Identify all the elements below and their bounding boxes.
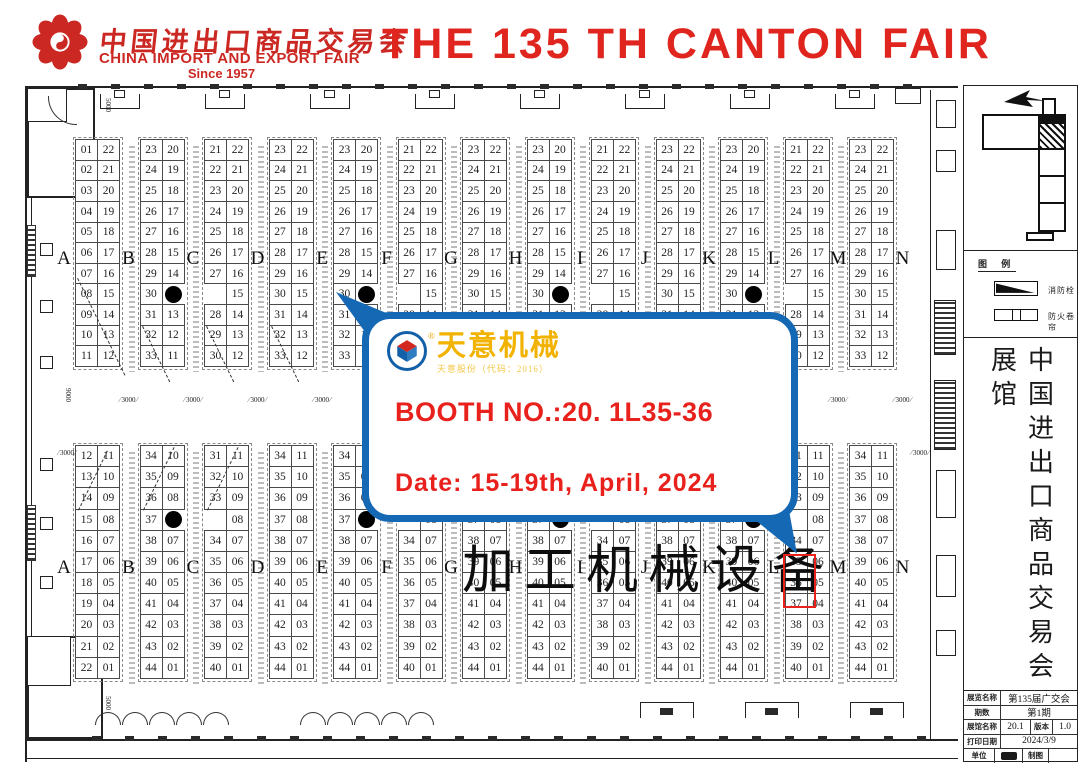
row-letter-A: A (54, 557, 74, 579)
booth-cell: 42 (462, 614, 485, 636)
booth-cell: 07 (226, 530, 249, 552)
booth-cell: 09 (291, 487, 314, 509)
booth-cell: 34 (333, 445, 356, 467)
wall-tick (752, 736, 761, 741)
booth-cell: 12 (162, 325, 185, 347)
booth-cell: 20 (420, 180, 443, 202)
wall-tick (342, 84, 351, 89)
booth-cell: 17 (420, 242, 443, 264)
booth-cell: 08 (226, 509, 249, 531)
booth-cell: 38 (849, 530, 872, 552)
booth-cell: 26 (333, 201, 356, 223)
booth-cell: 37 (204, 593, 227, 615)
booth-cell: 08 (97, 509, 120, 531)
booth-column-bottom-13: 3411351036093708380739064005410442034302… (850, 446, 894, 679)
booth-cell: 07 (291, 530, 314, 552)
booth-cell: 03 (871, 614, 894, 636)
fire-shutter-symbol (994, 309, 1038, 321)
highlighted-booth-L35-36 (783, 554, 816, 608)
wall-tick (804, 84, 813, 89)
booth-cell: 20 (97, 180, 120, 202)
wall-tick (851, 736, 860, 741)
booth-cell: 05 (162, 572, 185, 594)
entrance-structure (534, 90, 545, 98)
booth-cell: 30 (462, 283, 485, 305)
booth-cell: 04 (75, 201, 98, 223)
draw-value (1048, 749, 1077, 763)
booth-cell: 16 (871, 263, 894, 285)
booth-cell: 27 (785, 263, 808, 285)
booth-cell: 16 (678, 263, 701, 285)
booth-cell: 36 (333, 487, 356, 509)
stairwell-bottom-left-room (27, 636, 71, 686)
booth-cell: 17 (678, 242, 701, 264)
booth-cell: 21 (871, 160, 894, 182)
bottom-outer-wall (25, 758, 958, 759)
booth-cell: 22 (678, 139, 701, 161)
minimap-hall-cell (1040, 202, 1064, 229)
booth-cell: 21 (398, 139, 421, 161)
wall-tick (408, 84, 417, 89)
booth-cell: 02 (678, 636, 701, 658)
phase-label: 期数 (964, 706, 1000, 720)
booth-cell: 28 (720, 242, 743, 264)
booth-cell: 17 (549, 201, 572, 223)
booth-cell: 14 (807, 304, 830, 326)
booth-cell: 06 (162, 551, 185, 573)
booth-cell: 13 (291, 325, 314, 347)
booth-cell: 03 (742, 614, 765, 636)
booth-cell: 09 (871, 487, 894, 509)
booth-cell: 01 (226, 657, 249, 679)
wall-tick (521, 736, 530, 741)
booth-cell: 17 (613, 242, 636, 264)
door-swing-arc (176, 712, 202, 725)
floorplan: 0122022103200419051806170716081509141013… (0, 0, 1080, 764)
booth-cell: 20 (355, 139, 378, 161)
row-letter-C: C (183, 248, 203, 270)
wall-tick (785, 736, 794, 741)
booth-cell: 29 (140, 263, 163, 285)
booth-column-top-2: 2320241925182617271628152914303113321233… (141, 140, 185, 367)
booth-cell: 43 (527, 636, 550, 658)
booth-cell: 01 (162, 657, 185, 679)
booth-cell: 09 (97, 487, 120, 509)
wall-tick (672, 84, 681, 89)
booth-cell: 29 (849, 263, 872, 285)
dimension-3000: 3000 (888, 396, 918, 404)
wall-tick (276, 84, 285, 89)
booth-cell: 04 (420, 593, 443, 615)
booth-cell: 25 (462, 180, 485, 202)
booth-cell: 19 (75, 593, 98, 615)
booth-cell: 37 (398, 593, 421, 615)
booth-cell: 16 (355, 222, 378, 244)
service-room (934, 300, 956, 355)
booth-cell: 19 (549, 160, 572, 182)
booth-column-top-3: 2122222123202419251826172716152814291330… (205, 140, 249, 367)
booth-cell: 44 (656, 657, 679, 679)
row-letter-J: J (635, 248, 655, 270)
booth-cell: 08 (871, 509, 894, 531)
booth-cell: 15 (75, 509, 98, 531)
booth-cell: 38 (269, 530, 292, 552)
wall-tick (686, 736, 695, 741)
booth-cell: 16 (807, 263, 830, 285)
booth-cell: 37 (140, 509, 163, 531)
booth-column-bottom-1: 1211131014091508160717061805190420032102… (76, 446, 120, 679)
loading-bay-structure (870, 708, 883, 715)
dimension-3000: 3000 (823, 396, 853, 404)
wall-tick (653, 736, 662, 741)
booth-cell: 11 (291, 445, 314, 467)
booth-cell: 39 (591, 636, 614, 658)
wall-tick (620, 736, 629, 741)
booth-cell: 06 (97, 551, 120, 573)
booth-cell: 20 (871, 180, 894, 202)
booth-cell: 15 (226, 283, 249, 305)
booth-cell: 30 (140, 283, 163, 305)
minimap-hall-cell (1040, 148, 1064, 177)
booth-cell: 35 (333, 466, 356, 488)
booth-cell: 10 (807, 466, 830, 488)
booth-cell: 27 (333, 222, 356, 244)
dimension-3000: 3000 (178, 396, 208, 404)
booth-cell: 22 (291, 139, 314, 161)
booth-cell: 43 (140, 636, 163, 658)
fair-date-text: Date: 15-19th, April, 2024 (395, 469, 717, 498)
booth-cell: 27 (527, 222, 550, 244)
booth-cell: 08 (291, 509, 314, 531)
booth-cell: 09 (162, 466, 185, 488)
booth-cell: 22 (785, 160, 808, 182)
minimap-hall-column (1038, 114, 1066, 232)
dimension-3000: 3000 (307, 396, 337, 404)
booth-cell: 19 (871, 201, 894, 223)
row-letter-B: B (119, 557, 139, 579)
booth-cell: 28 (204, 304, 227, 326)
booth-cell: 02 (97, 636, 120, 658)
booth-cell: 05 (75, 222, 98, 244)
booth-cell: 18 (355, 180, 378, 202)
wall-tick (507, 84, 516, 89)
service-room (936, 230, 956, 270)
booth-cell: 03 (484, 614, 507, 636)
booth-cell: 17 (291, 242, 314, 264)
booth-cell: 39 (785, 636, 808, 658)
booth-cell: 14 (97, 304, 120, 326)
booth-cell: 26 (720, 201, 743, 223)
row-letter-G: G (441, 557, 461, 579)
booth-cell: 02 (75, 160, 98, 182)
booth-cell: 22 (420, 139, 443, 161)
booth-cell: 24 (398, 201, 421, 223)
dimension-9000: 9000 (64, 388, 72, 402)
booth-cell (591, 283, 614, 305)
booth-cell: 19 (291, 201, 314, 223)
booth-cell: 16 (226, 263, 249, 285)
booth-cell: 19 (742, 160, 765, 182)
booth-cell: 02 (871, 636, 894, 658)
booth-cell: 26 (591, 242, 614, 264)
wall-tick (125, 736, 134, 741)
booth-cell: 35 (398, 551, 421, 573)
booth-cell: 21 (785, 139, 808, 161)
booth-cell: 14 (226, 304, 249, 326)
booth-cell: 03 (355, 614, 378, 636)
wall-tick (78, 84, 87, 89)
service-room (936, 100, 956, 128)
door-swing-arc (381, 712, 407, 725)
booth-cell: 26 (269, 201, 292, 223)
row-letter-F: F (377, 557, 397, 579)
booth-cell: 03 (97, 614, 120, 636)
wall-tick (375, 84, 384, 89)
wall-tick (144, 84, 153, 89)
booth-cell: 29 (462, 263, 485, 285)
row-letter-E: E (312, 248, 332, 270)
booth-cell (162, 283, 185, 305)
booth-cell: 44 (269, 657, 292, 679)
door-swing-arc (408, 712, 434, 725)
loading-bay-structure (765, 708, 778, 715)
booth-cell: 15 (807, 283, 830, 305)
booth-cell: 25 (591, 222, 614, 244)
booth-cell: 10 (226, 466, 249, 488)
booth-cell: 01 (355, 657, 378, 679)
booth-cell: 38 (140, 530, 163, 552)
booth-cell: 15 (291, 283, 314, 305)
booth-cell: 18 (871, 222, 894, 244)
booth-cell: 15 (549, 242, 572, 264)
booth-cell: 22 (204, 160, 227, 182)
booth-cell: 42 (140, 614, 163, 636)
booth-cell: 06 (420, 551, 443, 573)
row-letter-E: E (312, 557, 332, 579)
service-room (936, 555, 956, 597)
booth-cell: 30 (527, 283, 550, 305)
booth-cell: 38 (204, 614, 227, 636)
booth-cell: 41 (849, 593, 872, 615)
booth-cell: 14 (355, 263, 378, 285)
wall-tick (573, 84, 582, 89)
entrance-structure (219, 90, 230, 98)
booth-cell: 42 (269, 614, 292, 636)
booth-cell: 18 (97, 222, 120, 244)
booth-cell: 18 (807, 222, 830, 244)
wall-tick (323, 736, 332, 741)
booth-cell: 40 (849, 572, 872, 594)
booth-cell: 26 (462, 201, 485, 223)
booth-cell: 10 (871, 466, 894, 488)
booth-cell: 24 (785, 201, 808, 223)
booth-cell: 24 (656, 160, 679, 182)
structural-column (40, 300, 53, 313)
version-label: 版本 (1030, 720, 1052, 734)
booth-cell: 05 (97, 572, 120, 594)
wall-tick (917, 736, 926, 741)
ramp-symbol (994, 281, 1038, 296)
door-swing-arc (203, 712, 229, 725)
booth-cell: 22 (871, 139, 894, 161)
wall-tick (540, 84, 549, 89)
row-letter-F: F (377, 248, 397, 270)
service-room (936, 470, 956, 518)
booth-cell: 43 (720, 636, 743, 658)
drawing-title-block: 展览名称 第135届广交会 期数 第1期 展馆名称 20.1 版本 1.0 打印… (964, 691, 1077, 761)
booth-cell: 21 (291, 160, 314, 182)
unit-label: 单位 (964, 749, 994, 763)
entrance-structure (744, 90, 755, 98)
booth-cell: 15 (355, 242, 378, 264)
booth-cell: 19 (162, 160, 185, 182)
room-top-right (895, 88, 921, 104)
booth-cell: 14 (291, 304, 314, 326)
wall-tick (177, 84, 186, 89)
wall-tick (210, 84, 219, 89)
booth-cell: 20 (162, 139, 185, 161)
booth-cell: 19 (678, 201, 701, 223)
booth-cell: 18 (420, 222, 443, 244)
booth-cell: 40 (269, 572, 292, 594)
booth-cell: 01 (742, 657, 765, 679)
wall-tick (818, 736, 827, 741)
row-letter-L: L (764, 248, 784, 270)
legend: 图 例 消防栓 防火卷帘 (964, 251, 1077, 338)
booth-cell: 24 (204, 201, 227, 223)
dimension-3000: 3000 (243, 396, 273, 404)
entrance-structure (114, 90, 125, 98)
booth-cell: 36 (204, 572, 227, 594)
booth-cell: 13 (807, 325, 830, 347)
booth-cell: 19 (807, 201, 830, 223)
booth-cell: 23 (204, 180, 227, 202)
booth-cell: 09 (226, 487, 249, 509)
booth-cell: 36 (398, 572, 421, 594)
wall-tick (738, 84, 747, 89)
booth-cell: 11 (807, 445, 830, 467)
wall-tick (587, 736, 596, 741)
booth-cell: 22 (613, 139, 636, 161)
door-swing-arc (327, 712, 353, 725)
booth-cell: 03 (549, 614, 572, 636)
booth-cell: 19 (226, 201, 249, 223)
booth-cell: 39 (849, 551, 872, 573)
print-date-label: 打印日期 (964, 735, 1000, 749)
booth-cell: 17 (226, 242, 249, 264)
booth-cell: 24 (269, 160, 292, 182)
booth-cell: 15 (97, 283, 120, 305)
booth-cell: 13 (871, 325, 894, 347)
booth-cell: 24 (140, 160, 163, 182)
booth-cell: 16 (75, 530, 98, 552)
wall-tick (257, 736, 266, 741)
booth-cell: 43 (269, 636, 292, 658)
wall-tick (606, 84, 615, 89)
booth-cell: 05 (226, 572, 249, 594)
booth-cell: 22 (484, 139, 507, 161)
booth-cell: 04 (226, 593, 249, 615)
booth-cell: 12 (291, 345, 314, 367)
booth-cell: 22 (398, 160, 421, 182)
booth-cell: 27 (140, 222, 163, 244)
booth-cell: 25 (785, 222, 808, 244)
dimension-5000: 5000 (104, 98, 112, 112)
booth-cell: 27 (462, 222, 485, 244)
booth-cell: 42 (527, 614, 550, 636)
door-swing-arc (149, 712, 175, 725)
booth-cell: 20 (75, 614, 98, 636)
booth-cell: 23 (398, 180, 421, 202)
booth-cell: 16 (97, 263, 120, 285)
wall-tick (554, 736, 563, 741)
booth-cell: 16 (613, 263, 636, 285)
booth-cell: 23 (591, 180, 614, 202)
booth-cell: 32 (849, 325, 872, 347)
tianyi-cube-logo-icon (387, 331, 427, 371)
booth-cell: 02 (355, 636, 378, 658)
draw-label: 制图 (1022, 749, 1048, 763)
venue-vertical-title: 中国进出口商品交易会展馆 (984, 346, 1058, 690)
booth-cell: 31 (269, 304, 292, 326)
booth-cell: 07 (871, 530, 894, 552)
booth-cell: 01 (75, 139, 98, 161)
booth-cell: 08 (162, 487, 185, 509)
booth-cell: 17 (162, 201, 185, 223)
booth-cell (204, 283, 227, 305)
booth-cell: 38 (333, 530, 356, 552)
booth-cell: 21 (420, 160, 443, 182)
booth-cell: 16 (549, 222, 572, 244)
booth-cell: 37 (333, 509, 356, 531)
booth-cell: 01 (549, 657, 572, 679)
row-letter-B: B (119, 248, 139, 270)
booth-cell: 04 (355, 593, 378, 615)
booth-cell: 21 (678, 160, 701, 182)
booth-cell: 02 (613, 636, 636, 658)
wall-tick (441, 84, 450, 89)
canton-fair-floorplan-page: 中国进出口商品交易会 CHINA IMPORT AND EXPORT FAIR … (0, 0, 1080, 764)
booth-cell: 16 (420, 263, 443, 285)
booth-cell: 24 (849, 160, 872, 182)
wall-tick (903, 84, 912, 89)
structural-column (40, 243, 53, 256)
wall-tick (92, 736, 101, 741)
hall-category-label: 加工机械设备 (462, 528, 834, 603)
booth-cell: 21 (226, 160, 249, 182)
booth-cell: 23 (462, 139, 485, 161)
booth-cell: 43 (849, 636, 872, 658)
booth-cell: 25 (204, 222, 227, 244)
booth-cell: 20 (484, 180, 507, 202)
wall-tick (639, 84, 648, 89)
booth-cell: 15 (162, 242, 185, 264)
booth-cell: 03 (613, 614, 636, 636)
booth-cell (549, 283, 572, 305)
booth-cell: 13 (226, 325, 249, 347)
exhibition-name-label: 展览名称 (964, 691, 1000, 705)
booth-cell: 37 (849, 509, 872, 531)
booth-cell: 22 (97, 139, 120, 161)
row-letter-N: N (893, 557, 913, 579)
booth-cell: 17 (355, 201, 378, 223)
row-letter-I: I (570, 248, 590, 270)
booth-cell: 04 (291, 593, 314, 615)
booth-cell (204, 509, 227, 531)
booth-cell: 15 (742, 242, 765, 264)
booth-cell: 01 (807, 657, 830, 679)
minimap-current-hall (1040, 124, 1064, 150)
